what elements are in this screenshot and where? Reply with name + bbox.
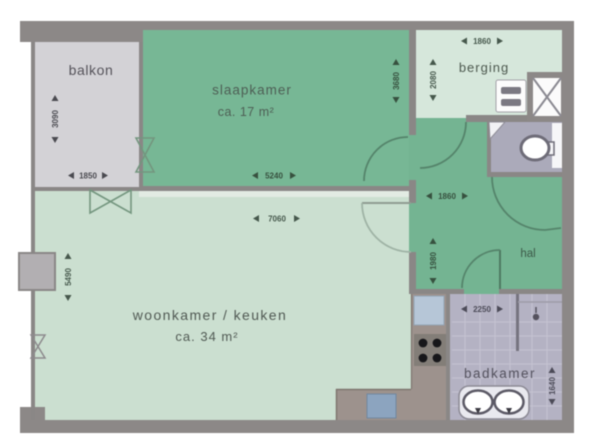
svg-text:ca. 34 m²: ca. 34 m² xyxy=(175,329,238,344)
svg-text:1980: 1980 xyxy=(429,252,438,270)
svg-text:slaapkamer: slaapkamer xyxy=(212,83,292,98)
svg-text:5490: 5490 xyxy=(64,268,73,286)
svg-text:1640: 1640 xyxy=(548,377,557,395)
svg-text:7060: 7060 xyxy=(268,215,286,224)
svg-text:1860: 1860 xyxy=(473,37,491,46)
svg-text:1860: 1860 xyxy=(438,192,456,201)
svg-text:2250: 2250 xyxy=(473,305,491,314)
svg-text:3680: 3680 xyxy=(392,72,401,90)
svg-text:5240: 5240 xyxy=(265,172,283,181)
svg-text:3090: 3090 xyxy=(51,110,60,128)
svg-text:balkon: balkon xyxy=(69,62,114,78)
svg-text:badkamer: badkamer xyxy=(464,366,536,381)
svg-text:1850: 1850 xyxy=(79,172,97,181)
svg-text:hal: hal xyxy=(520,248,535,260)
svg-text:woonkamer / keuken: woonkamer / keuken xyxy=(132,307,287,323)
svg-text:ca. 17 m²: ca. 17 m² xyxy=(218,105,275,119)
svg-text:berging: berging xyxy=(459,60,509,75)
svg-text:2080: 2080 xyxy=(429,71,438,89)
